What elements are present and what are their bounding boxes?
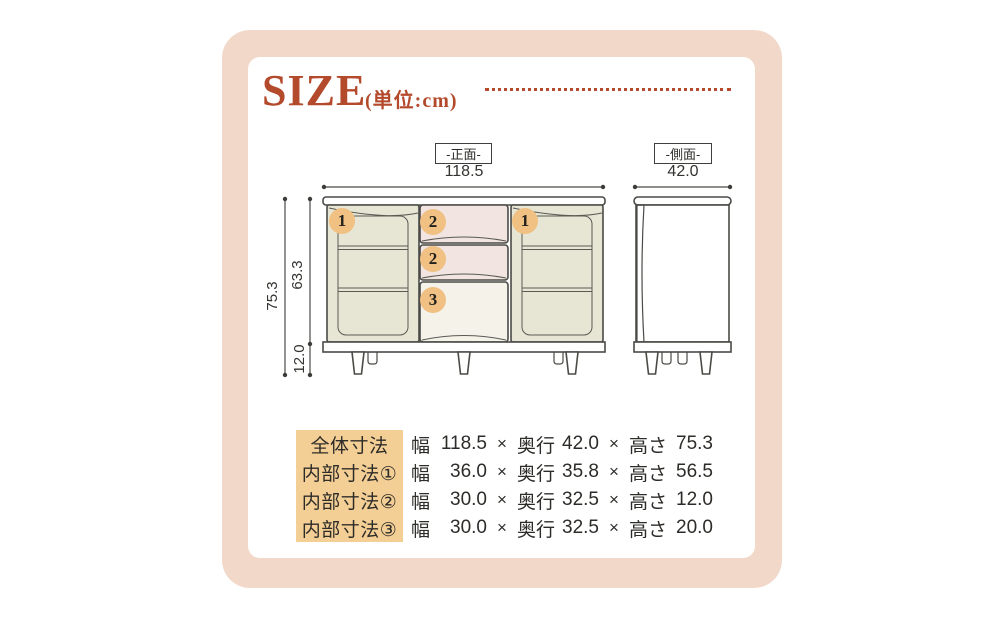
front-view-cabinet (323, 197, 605, 374)
badge-top-drawer: 2 (420, 209, 446, 235)
front-width-dimension: 118.5 (414, 163, 514, 181)
row-label: 内部寸法① (296, 458, 403, 486)
height-unit-label: 高さ (629, 459, 671, 486)
table-row: 全体寸法 幅 118.5 × 奥行 42.0 × 高さ 75.3 (296, 430, 713, 458)
height-unit-label: 高さ (629, 487, 671, 514)
width-value: 118.5 (435, 433, 487, 455)
page-canvas: SIZE (単位:cm) (0, 0, 1000, 621)
depth-unit-label: 奥行 (517, 431, 559, 458)
front-view-label: -正面- (435, 143, 492, 164)
depth-value: 32.5 (559, 489, 599, 511)
depth-value: 35.8 (559, 461, 599, 483)
side-view-cabinet (634, 197, 731, 374)
front-legs (352, 352, 578, 374)
width-value: 30.0 (435, 517, 487, 539)
times-separator: × (487, 462, 517, 482)
height-unit-label: 高さ (629, 431, 671, 458)
pink-frame: SIZE (単位:cm) (222, 30, 782, 588)
width-value: 36.0 (435, 461, 487, 483)
side-depth-dimension: 42.0 (633, 163, 733, 181)
times-separator: × (599, 462, 629, 482)
row-values: 幅 30.0 × 奥行 32.5 × 高さ 20.0 (403, 515, 713, 542)
badge-middle-drawer: 2 (420, 246, 446, 272)
side-legs (646, 352, 712, 374)
depth-value: 32.5 (559, 517, 599, 539)
row-values: 幅 118.5 × 奥行 42.0 × 高さ 75.3 (403, 431, 713, 458)
height-value: 75.3 (671, 433, 713, 455)
height-unit-label: 高さ (629, 515, 671, 542)
times-separator: × (487, 518, 517, 538)
table-row: 内部寸法① 幅 36.0 × 奥行 35.8 × 高さ 56.5 (296, 458, 713, 486)
depth-unit-label: 奥行 (517, 487, 559, 514)
width-unit-label: 幅 (411, 431, 435, 458)
content-panel: SIZE (単位:cm) (248, 57, 755, 558)
table-row: 内部寸法② 幅 30.0 × 奥行 32.5 × 高さ 12.0 (296, 486, 713, 514)
depth-unit-label: 奥行 (517, 459, 559, 486)
table-row: 内部寸法③ 幅 30.0 × 奥行 32.5 × 高さ 20.0 (296, 514, 713, 542)
height-value: 56.5 (671, 461, 713, 483)
side-view-label: -側面- (654, 143, 712, 164)
depth-value: 42.0 (559, 433, 599, 455)
width-value: 30.0 (435, 489, 487, 511)
times-separator: × (599, 518, 629, 538)
row-label: 内部寸法③ (296, 514, 403, 542)
row-values: 幅 30.0 × 奥行 32.5 × 高さ 12.0 (403, 487, 713, 514)
depth-unit-label: 奥行 (517, 515, 559, 542)
width-unit-label: 幅 (411, 487, 435, 514)
row-label: 全体寸法 (296, 430, 403, 458)
width-unit-label: 幅 (411, 515, 435, 542)
badge-bottom-drawer: 3 (420, 287, 446, 313)
row-values: 幅 36.0 × 奥行 35.8 × 高さ 56.5 (403, 459, 713, 486)
times-separator: × (487, 490, 517, 510)
spec-table: 全体寸法 幅 118.5 × 奥行 42.0 × 高さ 75.3 内部寸法① (296, 430, 713, 542)
width-unit-label: 幅 (411, 459, 435, 486)
body-height-dimension: 63.3 (290, 253, 306, 297)
badge-left-door: 1 (329, 208, 355, 234)
total-height-dimension: 75.3 (265, 274, 281, 318)
times-separator: × (599, 490, 629, 510)
badge-right-door: 1 (512, 208, 538, 234)
times-separator: × (487, 434, 517, 454)
row-label: 内部寸法② (296, 486, 403, 514)
height-value: 20.0 (671, 517, 713, 539)
times-separator: × (599, 434, 629, 454)
height-value: 12.0 (671, 489, 713, 511)
leg-height-dimension: 12.0 (292, 337, 308, 381)
